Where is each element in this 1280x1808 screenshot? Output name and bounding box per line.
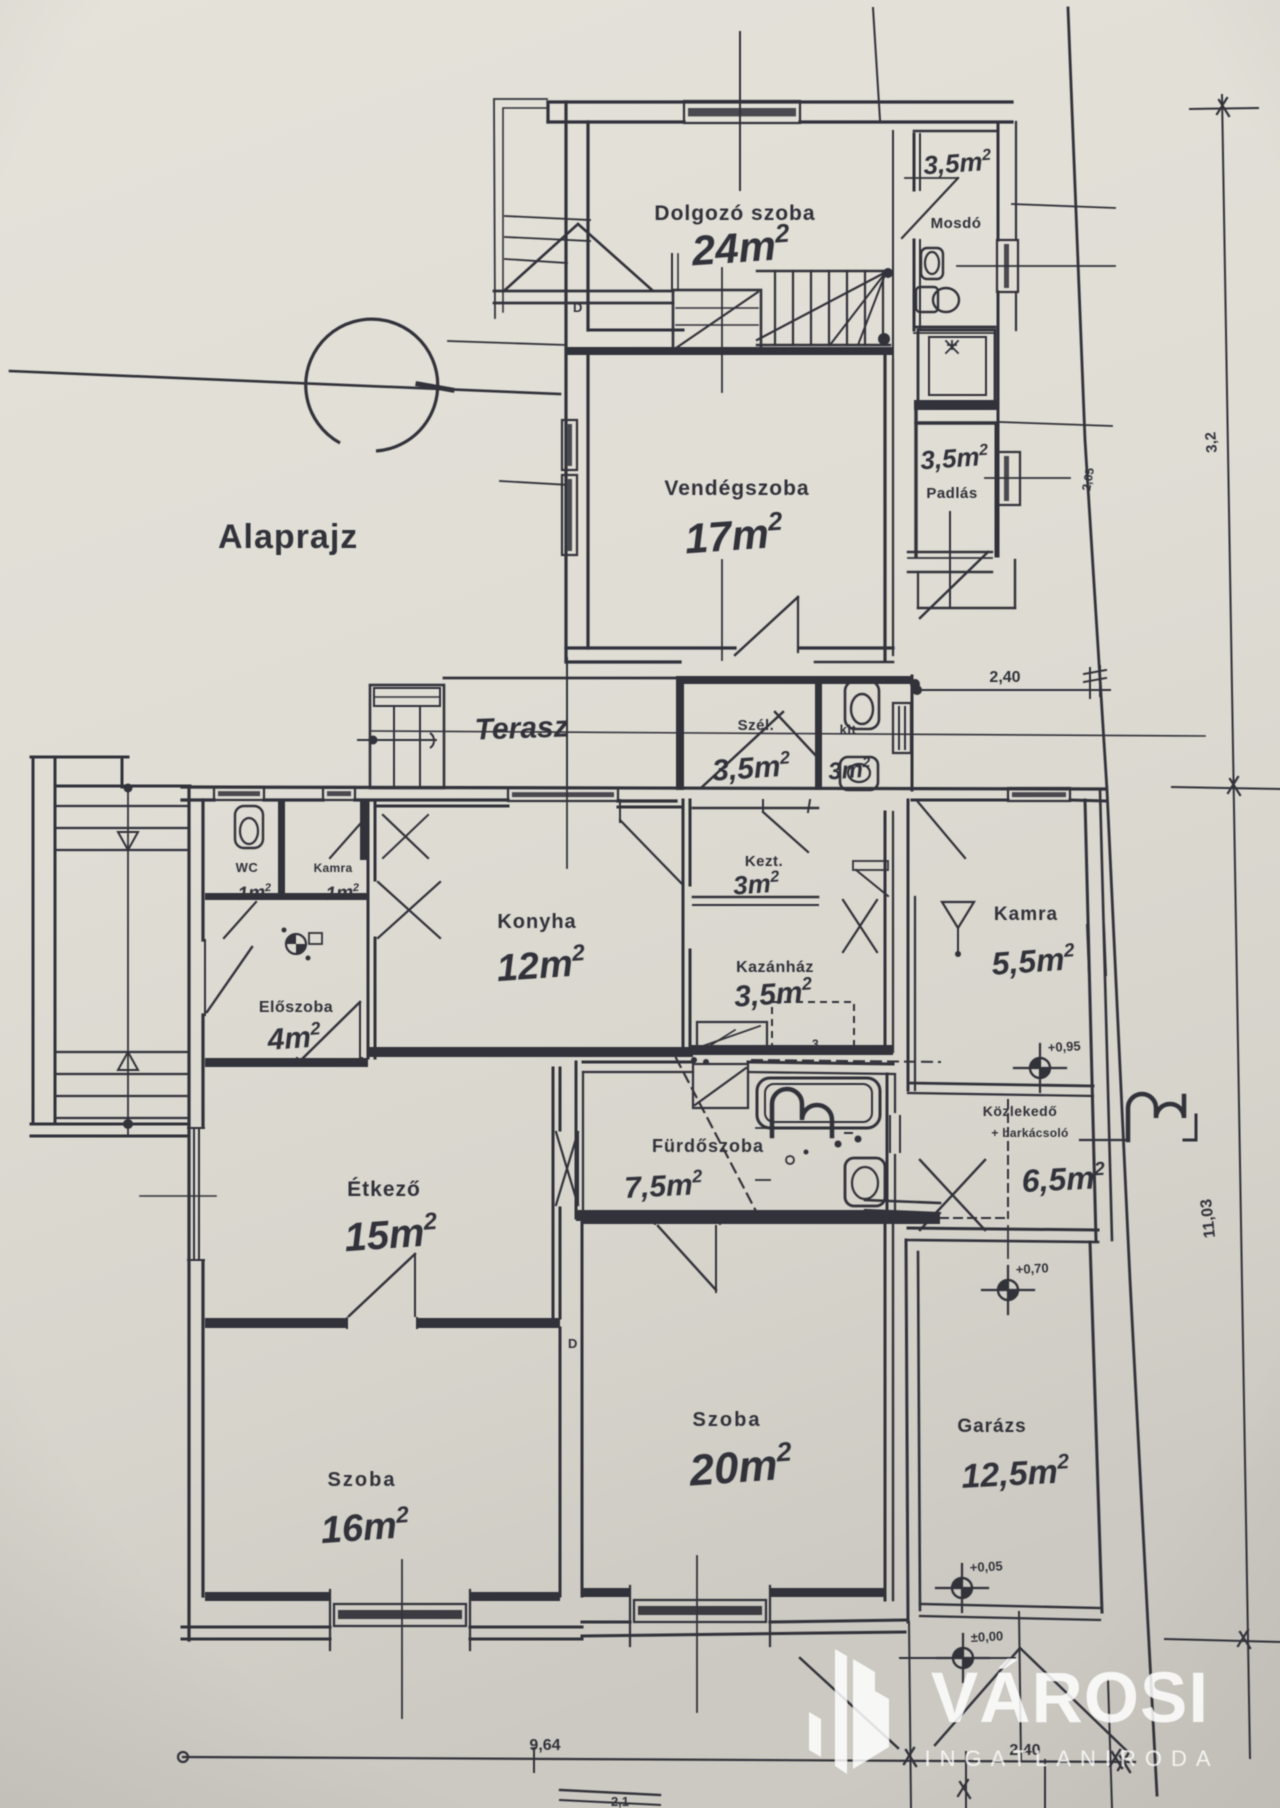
svg-text:Közlekedő: Közlekedő [983,1103,1058,1119]
svg-text:VÁROSI: VÁROSI [931,1659,1209,1738]
svg-text:Kamra: Kamra [994,904,1058,925]
svg-text:D: D [568,1336,577,1351]
svg-text:Dolgozó szoba: Dolgozó szoba [654,202,815,225]
svg-text:Padlás: Padlás [926,485,977,502]
svg-text:6,5m2: 6,5m2 [1021,1159,1107,1199]
svg-text:Szoba: Szoba [693,1409,762,1431]
svg-text:24m2: 24m2 [689,218,792,275]
svg-text:kit: kit [840,722,857,737]
svg-text:9,64: 9,64 [529,1737,560,1754]
svg-text:12m2: 12m2 [495,939,587,990]
svg-text:3,5m2: 3,5m2 [733,973,814,1013]
svg-text:Garázs: Garázs [957,1416,1026,1437]
svg-text:20m2: 20m2 [687,1437,794,1496]
svg-text:WC: WC [236,860,259,875]
svg-text:Kamra: Kamra [314,861,353,875]
svg-text:3,2: 3,2 [1202,431,1221,453]
svg-text:3,5m2: 3,5m2 [919,441,989,476]
svg-text:17m2: 17m2 [683,506,785,563]
svg-text:Szél.: Szél. [738,717,775,734]
svg-text:16m2: 16m2 [319,1501,411,1552]
svg-text:Étkező: Étkező [347,1178,421,1201]
svg-text:3,5m2: 3,5m2 [711,747,792,787]
svg-text:D: D [573,300,582,315]
svg-text:15m2: 15m2 [343,1208,440,1260]
svg-text:+0,70: +0,70 [1015,1260,1049,1277]
svg-text:12,5m2: 12,5m2 [960,1450,1070,1496]
svg-text:Szoba: Szoba [328,1469,397,1491]
svg-text:+0,05: +0,05 [969,1558,1003,1575]
svg-text:+0,95: +0,95 [1047,1038,1081,1055]
svg-text:3,5m2: 3,5m2 [922,146,992,181]
svg-text:Mosdó: Mosdó [931,215,982,232]
svg-text:+ barkácsoló: + barkácsoló [991,1126,1068,1140]
svg-text:Terasz: Terasz [474,710,569,746]
svg-text:Konyha: Konyha [497,911,576,933]
svg-text:Vendégszoba: Vendégszoba [664,477,809,500]
svg-text:Kezt.: Kezt. [745,853,783,870]
svg-text:2,1: 2,1 [611,1794,629,1808]
svg-text:3: 3 [812,1037,819,1051]
svg-text:2,40: 2,40 [989,669,1020,686]
svg-text:±0,00: ±0,00 [970,1628,1003,1645]
svg-text:5,5m2: 5,5m2 [990,940,1076,982]
svg-text:Alaprajz: Alaprajz [218,518,358,556]
svg-text:7,5m2: 7,5m2 [623,1166,703,1205]
svg-text:INGATLANIRODA: INGATLANIRODA [924,1746,1219,1771]
svg-text:Fürdőszoba: Fürdőszoba [652,1136,764,1156]
svg-text:Előszoba: Előszoba [259,999,333,1016]
